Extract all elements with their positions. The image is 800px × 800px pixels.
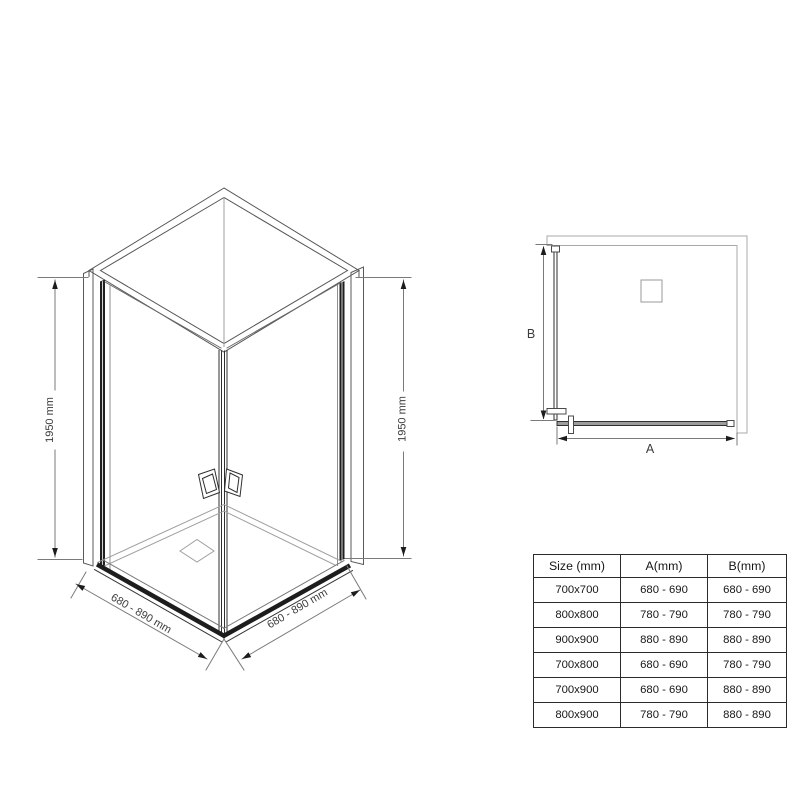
bottom-rail-right bbox=[224, 561, 353, 643]
right-door-profile bbox=[340, 281, 345, 561]
col-header-b: B(mm) bbox=[708, 555, 787, 578]
left-door-handle-plan bbox=[547, 409, 566, 415]
top-wall-bracket bbox=[552, 246, 560, 252]
left-door-profile bbox=[100, 280, 105, 569]
width-label: A bbox=[646, 442, 655, 456]
table-row: 800x800 780 - 790 780 - 790 bbox=[534, 603, 787, 628]
cell-size: 700x800 bbox=[534, 653, 621, 678]
drain-plan bbox=[641, 280, 662, 302]
glass-panels-plan bbox=[547, 246, 734, 434]
door-handles-iso bbox=[199, 469, 243, 499]
drain-iso bbox=[180, 540, 214, 563]
table-header-row: Size (mm) A(mm) B(mm) bbox=[534, 555, 787, 578]
col-header-size: Size (mm) bbox=[534, 555, 621, 578]
cell-b: 880 - 890 bbox=[708, 678, 787, 703]
dimension-a: A bbox=[557, 427, 737, 456]
cell-a: 780 - 790 bbox=[621, 603, 708, 628]
cell-a: 680 - 690 bbox=[621, 578, 708, 603]
bottom-glass-panel bbox=[557, 422, 734, 426]
table-row: 700x700 680 - 690 680 - 690 bbox=[534, 578, 787, 603]
cell-a: 880 - 890 bbox=[621, 628, 708, 653]
width-dimension-right: 680 - 890 mm bbox=[224, 566, 366, 670]
height-dimension-left: 1950 mm bbox=[38, 278, 88, 560]
col-header-a: A(mm) bbox=[621, 555, 708, 578]
dimension-drawing-canvas: 1950 mm 1950 mm 680 - 890 mm bbox=[0, 0, 800, 800]
height-label-left: 1950 mm bbox=[44, 397, 56, 443]
glass-edges bbox=[105, 282, 341, 573]
cell-size: 800x800 bbox=[534, 603, 621, 628]
cell-a: 780 - 790 bbox=[621, 703, 708, 728]
isometric-view: 1950 mm 1950 mm 680 - 890 mm bbox=[38, 188, 411, 670]
shower-tray bbox=[95, 505, 353, 643]
left-glass-panel bbox=[554, 248, 557, 420]
cell-a: 680 - 690 bbox=[621, 678, 708, 703]
cell-b: 780 - 790 bbox=[708, 653, 787, 678]
table-row: 700x900 680 - 690 880 - 890 bbox=[534, 678, 787, 703]
walls-plan bbox=[547, 236, 747, 433]
cell-b: 880 - 890 bbox=[708, 703, 787, 728]
depth-label: B bbox=[527, 327, 535, 341]
table-row: 700x800 680 - 690 780 - 790 bbox=[534, 653, 787, 678]
bottom-door-handle-plan bbox=[569, 416, 574, 434]
table-row: 900x900 880 - 890 880 - 890 bbox=[534, 628, 787, 653]
height-dimension-right: 1950 mm bbox=[345, 278, 411, 559]
width-label-left: 680 - 890 mm bbox=[109, 592, 174, 637]
dimension-b: B bbox=[527, 245, 554, 421]
left-wall-profile bbox=[84, 269, 94, 566]
cell-b: 780 - 790 bbox=[708, 603, 787, 628]
cell-a: 680 - 690 bbox=[621, 653, 708, 678]
table-row: 800x900 780 - 790 880 - 890 bbox=[534, 703, 787, 728]
right-wall-bracket bbox=[727, 421, 734, 427]
cell-b: 880 - 890 bbox=[708, 628, 787, 653]
cell-size: 700x900 bbox=[534, 678, 621, 703]
right-wall-profile bbox=[351, 267, 364, 565]
cell-size: 900x900 bbox=[534, 628, 621, 653]
cell-size: 700x700 bbox=[534, 578, 621, 603]
cell-size: 800x900 bbox=[534, 703, 621, 728]
height-label-right: 1950 mm bbox=[397, 396, 409, 442]
plan-view: B A bbox=[527, 236, 747, 456]
cell-b: 680 - 690 bbox=[708, 578, 787, 603]
center-post bbox=[219, 351, 227, 636]
size-table: Size (mm) A(mm) B(mm) 700x700 680 - 690 … bbox=[533, 554, 787, 728]
